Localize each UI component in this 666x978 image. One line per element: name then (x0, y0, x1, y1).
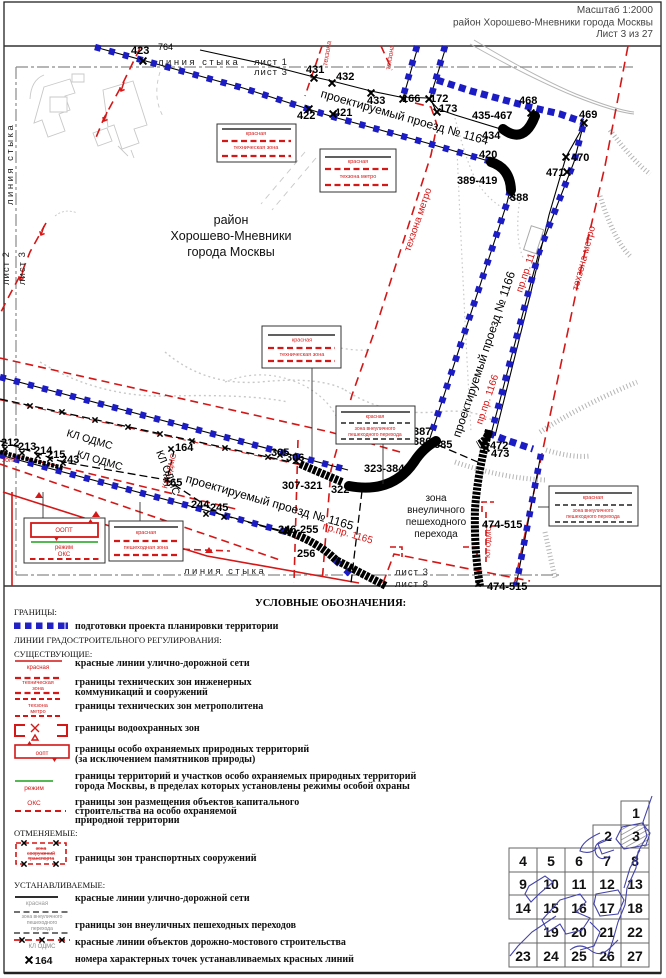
svg-text:469: 469 (579, 109, 597, 121)
svg-text:лист 3: лист 3 (17, 251, 28, 285)
svg-text:подготовки проекта планировки: подготовки проекта планировки территории (75, 621, 279, 632)
svg-text:пешеходного перехода: пешеходного перехода (566, 514, 620, 520)
svg-text:ЛИНИИ ГРАДОСТРОИТЕЛЬНОГО РЕГУЛ: ЛИНИИ ГРАДОСТРОИТЕЛЬНОГО РЕГУЛИРОВАНИЯ: (14, 635, 222, 645)
svg-text:красная: красная (366, 414, 385, 420)
svg-text:432: 432 (336, 71, 354, 83)
svg-text:красные линии улично-дорожной: красные линии улично-дорожной сети (75, 658, 250, 669)
svg-text:пешеходного: пешеходного (406, 517, 467, 528)
svg-text:УСЛОВНЫЕ ОБОЗНАЧЕНИЯ:: УСЛОВНЫЕ ОБОЗНАЧЕНИЯ: (255, 598, 406, 609)
svg-text:район: район (214, 213, 249, 227)
svg-text:Лист 3 из 27: Лист 3 из 27 (596, 29, 653, 40)
svg-text:5: 5 (547, 853, 555, 869)
svg-text:красные линии объектов дорожно: красные линии объектов дорожно-мостового… (75, 937, 346, 948)
svg-text:зона: зона (2, 457, 17, 464)
svg-text:линия стыка: линия стыка (184, 566, 266, 577)
svg-text:244: 244 (191, 499, 210, 511)
svg-text:306: 306 (286, 452, 304, 464)
svg-text:14: 14 (515, 900, 531, 916)
svg-text:техническая зона: техническая зона (234, 145, 280, 151)
svg-text:3: 3 (632, 828, 640, 844)
svg-text:границы зон внеуличных пешеход: границы зон внеуличных пешеходных перехо… (75, 920, 297, 931)
svg-text:красная: красная (292, 338, 312, 344)
svg-text:техническая зона: техническая зона (280, 352, 326, 358)
svg-text:ОТМЕНЯЕМЫЕ:: ОТМЕНЯЕМЫЕ: (14, 828, 78, 838)
svg-text:режим: режим (24, 785, 44, 792)
svg-text:4: 4 (519, 853, 527, 869)
svg-text:ОКС: ОКС (58, 552, 71, 558)
svg-text:388: 388 (510, 192, 528, 204)
svg-text:22: 22 (627, 924, 643, 940)
svg-text:лист 3: лист 3 (395, 567, 429, 578)
svg-text:323-384: 323-384 (364, 463, 405, 475)
svg-text:линия стыка: линия стыка (158, 57, 240, 68)
svg-text:422: 422 (297, 110, 315, 122)
svg-text:транспорта: транспорта (28, 856, 55, 862)
svg-text:ООПТ: ООПТ (55, 528, 73, 534)
svg-text:468: 468 (519, 95, 537, 107)
svg-text:линия стыка: линия стыка (5, 123, 16, 205)
svg-text:435-467: 435-467 (472, 110, 512, 122)
svg-text:164: 164 (35, 955, 53, 967)
svg-text:473: 473 (491, 448, 509, 460)
svg-text:метро: метро (30, 709, 45, 715)
svg-text:КЛ ОДМС: КЛ ОДМС (28, 944, 56, 950)
svg-text:красные линии улично-дорожной: красные линии улично-дорожной сети (75, 893, 250, 904)
svg-text:27: 27 (627, 948, 643, 964)
svg-text:166: 166 (402, 93, 420, 105)
svg-text:13: 13 (627, 876, 643, 892)
svg-text:420: 420 (479, 149, 497, 161)
svg-text:256: 256 (297, 548, 315, 560)
svg-text:перехода: перехода (414, 529, 458, 540)
svg-text:красная: красная (27, 665, 49, 671)
svg-text:307-321: 307-321 (282, 480, 322, 492)
svg-text:164: 164 (175, 442, 194, 454)
svg-text:18: 18 (627, 900, 643, 916)
svg-text:25: 25 (571, 948, 587, 964)
svg-text:границы технических зон метроп: границы технических зон метрополитена (75, 701, 263, 712)
svg-text:423: 423 (131, 45, 149, 57)
svg-text:387: 387 (413, 426, 431, 438)
svg-text:17: 17 (599, 900, 615, 916)
svg-text:322: 322 (331, 484, 349, 496)
svg-text:389-419: 389-419 (457, 175, 497, 187)
svg-text:ГРАНИЦЫ:: ГРАНИЦЫ: (14, 607, 57, 617)
svg-text:КЛ ОДМС: КЛ ОДМС (485, 526, 493, 558)
svg-text:11: 11 (572, 876, 587, 892)
svg-text:Масштаб 1:2000: Масштаб 1:2000 (577, 4, 654, 16)
svg-text:внеуличного: внеуличного (407, 505, 465, 516)
svg-text:лист 2: лист 2 (1, 251, 12, 285)
svg-text:21: 21 (599, 924, 615, 940)
svg-text:техзона метро: техзона метро (340, 174, 377, 180)
svg-text:12: 12 (599, 876, 615, 892)
svg-text:красная: красная (583, 495, 603, 501)
svg-text:номера характерных точек устан: номера характерных точек устанавливаемых… (75, 954, 354, 965)
svg-text:красная: красная (26, 901, 48, 907)
svg-text:421: 421 (334, 107, 352, 119)
svg-text:(за исключением памятников при: (за исключением памятников природы) (75, 754, 255, 765)
svg-text:212: 212 (1, 437, 19, 449)
svg-text:красная: красная (348, 159, 368, 165)
svg-text:лист 3: лист 3 (254, 67, 288, 78)
svg-text:зона: зона (425, 493, 447, 504)
svg-text:Хорошево-Мневники: Хорошево-Мневники (171, 229, 292, 243)
svg-text:красная: красная (246, 131, 266, 137)
svg-text:города Москвы: города Москвы (187, 245, 274, 259)
svg-text:9: 9 (519, 876, 527, 892)
svg-text:470: 470 (571, 152, 589, 164)
svg-text:6: 6 (575, 853, 583, 869)
svg-text:ОКС: ОКС (27, 800, 41, 807)
svg-text:23: 23 (515, 948, 531, 964)
svg-text:7: 7 (603, 853, 611, 869)
svg-text:лист 8: лист 8 (395, 579, 429, 590)
svg-text:красная: красная (136, 530, 156, 536)
svg-text:зона: зона (32, 686, 45, 692)
svg-text:коммуникаций и сооружений: коммуникаций и сооружений (75, 687, 208, 698)
svg-text:природной территории: природной территории (75, 815, 180, 826)
svg-text:границы водоохранных зон: границы водоохранных зон (75, 723, 200, 734)
svg-text:246-255: 246-255 (278, 524, 318, 536)
svg-text:оопт: оопт (36, 751, 49, 757)
svg-text:245: 245 (210, 502, 228, 514)
svg-text:пешеходная зона: пешеходная зона (124, 545, 169, 551)
svg-text:2: 2 (604, 828, 612, 844)
svg-text:границы зон транспортных соору: границы зон транспортных сооружений (75, 853, 257, 864)
svg-text:173: 173 (439, 103, 457, 115)
svg-text:режим: режим (55, 545, 73, 551)
svg-text:15: 15 (543, 900, 559, 916)
svg-text:471: 471 (546, 167, 564, 179)
svg-text:УСТАНАВЛИВАЕМЫЕ:: УСТАНАВЛИВАЕМЫЕ: (14, 880, 105, 890)
svg-text:города Москвы, в пределах кото: города Москвы, в пределах которых устано… (75, 781, 410, 792)
svg-text:перехода: перехода (31, 926, 53, 932)
svg-text:474-515: 474-515 (487, 581, 527, 593)
svg-text:24: 24 (543, 948, 559, 964)
svg-text:пешеходного перехода: пешеходного перехода (348, 432, 402, 438)
svg-text:1: 1 (632, 805, 640, 821)
svg-text:район Хорошево-Мневники города: район Хорошево-Мневники города Москвы (453, 18, 653, 29)
svg-text:764: 764 (158, 42, 173, 52)
svg-text:385: 385 (434, 439, 452, 451)
